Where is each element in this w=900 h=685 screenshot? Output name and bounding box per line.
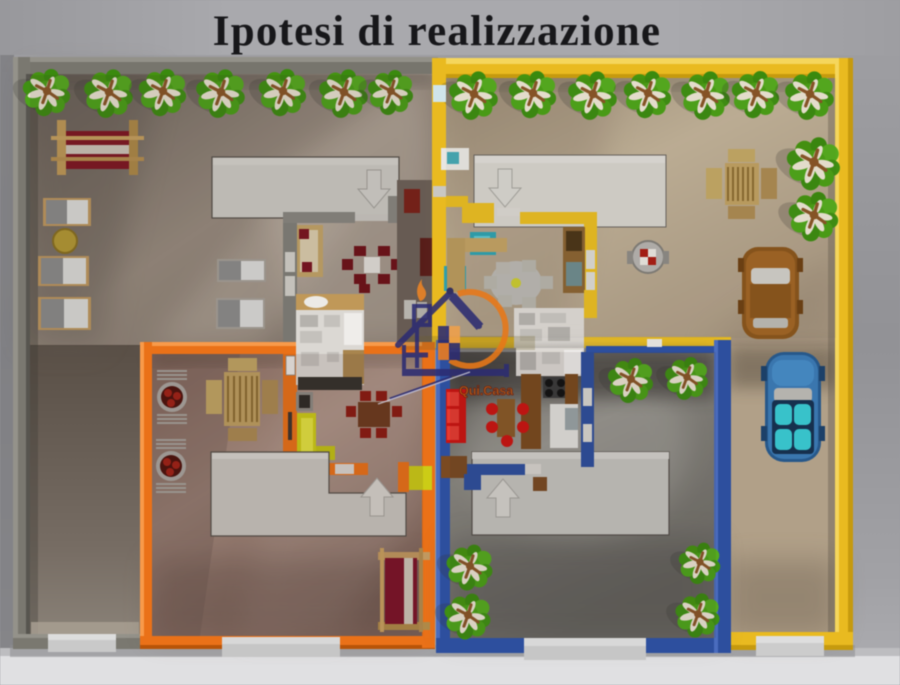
svg-text:Ipotesi di realizzazione: Ipotesi di realizzazione [213,8,661,55]
svg-text:Qui.Casa: Qui.Casa [459,384,514,398]
